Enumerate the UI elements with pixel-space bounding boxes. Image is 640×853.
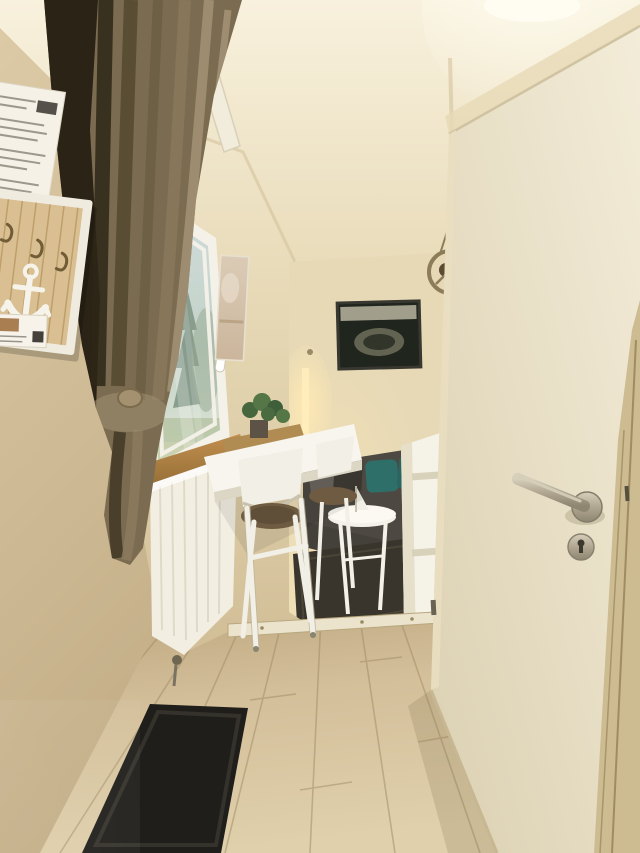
beach-picture (215, 255, 248, 360)
keyhole[interactable] (568, 534, 594, 560)
teal-pillow (365, 459, 399, 493)
vignette (0, 700, 140, 853)
info-card (0, 314, 47, 348)
door-hinge (431, 600, 437, 615)
curtain-tieback (118, 389, 142, 407)
apartment-photo (0, 0, 640, 853)
boat-picture (337, 301, 421, 369)
scene (0, 0, 640, 853)
